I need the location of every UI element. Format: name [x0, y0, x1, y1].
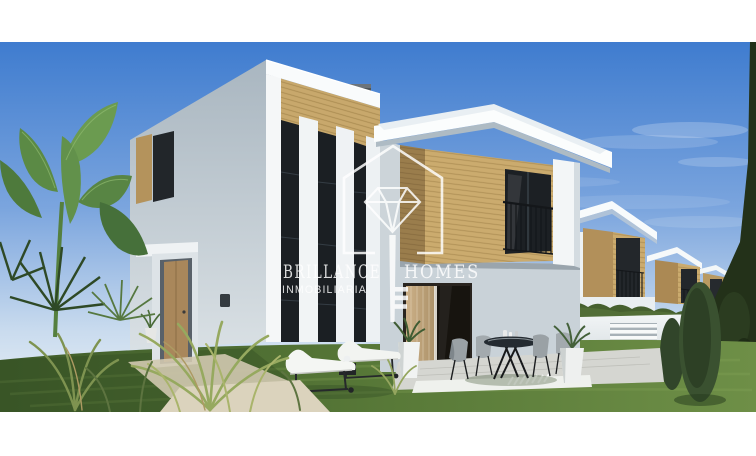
wall-lamp	[220, 294, 230, 307]
villa-scene: BRILLANCE HOMES INMOBILIARIA	[0, 42, 756, 412]
page: { "watermark": { "brand": { "primary": "…	[0, 0, 756, 456]
property-photo: BRILLANCE HOMES INMOBILIARIA	[0, 42, 756, 412]
brand-name-secondary: HOMES	[404, 261, 480, 283]
brand-name-primary: BRILLANCE	[283, 261, 381, 283]
brand-tagline: INMOBILIARIA	[282, 284, 367, 296]
